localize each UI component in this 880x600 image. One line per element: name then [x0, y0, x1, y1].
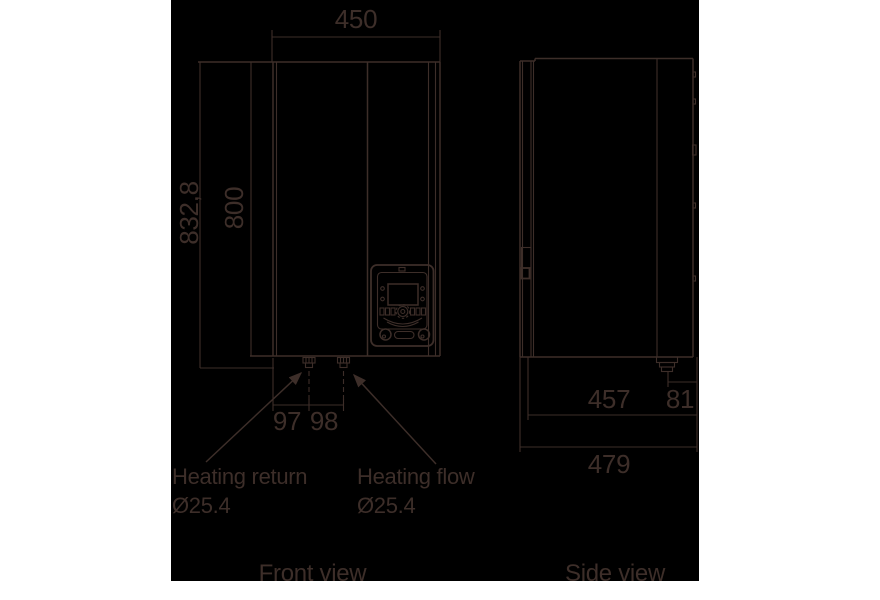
knobs — [380, 329, 430, 340]
pipe-connection-side — [657, 357, 678, 372]
dim-450-label: 450 — [335, 6, 377, 32]
front-view-caption: Front view — [259, 562, 367, 581]
heating-flow-arrow — [354, 375, 436, 464]
heating-flow-diameter: Ø25.4 — [357, 495, 415, 517]
page: { "colors": { "page_background": "#fffff… — [0, 0, 880, 600]
display-screen — [388, 284, 418, 305]
heating-return-diameter: Ø25.4 — [172, 495, 230, 517]
heating-flow-label: Heating flow — [357, 466, 474, 488]
dim-98-label: 98 — [310, 408, 338, 434]
side-view-caption: Side view — [565, 562, 665, 581]
control-panel — [371, 265, 434, 346]
panel-led-window — [399, 268, 405, 272]
dim-81-label: 81 — [666, 386, 694, 412]
dim-97-label: 97 — [273, 408, 301, 434]
dim-832-8-label: 832,8 — [176, 181, 202, 245]
dim-479-label: 479 — [588, 451, 630, 477]
front-view-drawing — [198, 30, 440, 464]
selector-dial — [398, 307, 408, 317]
dim-457-label: 457 — [588, 386, 630, 412]
drawing-canvas: 450 832,8 800 97 98 Heating return Ø25.4… — [171, 0, 699, 581]
button-row — [380, 305, 426, 319]
technical-drawing — [171, 0, 699, 581]
dim-800-label: 800 — [221, 187, 247, 229]
pipe-connections-front — [303, 358, 350, 368]
heating-return-label: Heating return — [172, 466, 307, 488]
side-cabinet-outline — [520, 59, 693, 358]
